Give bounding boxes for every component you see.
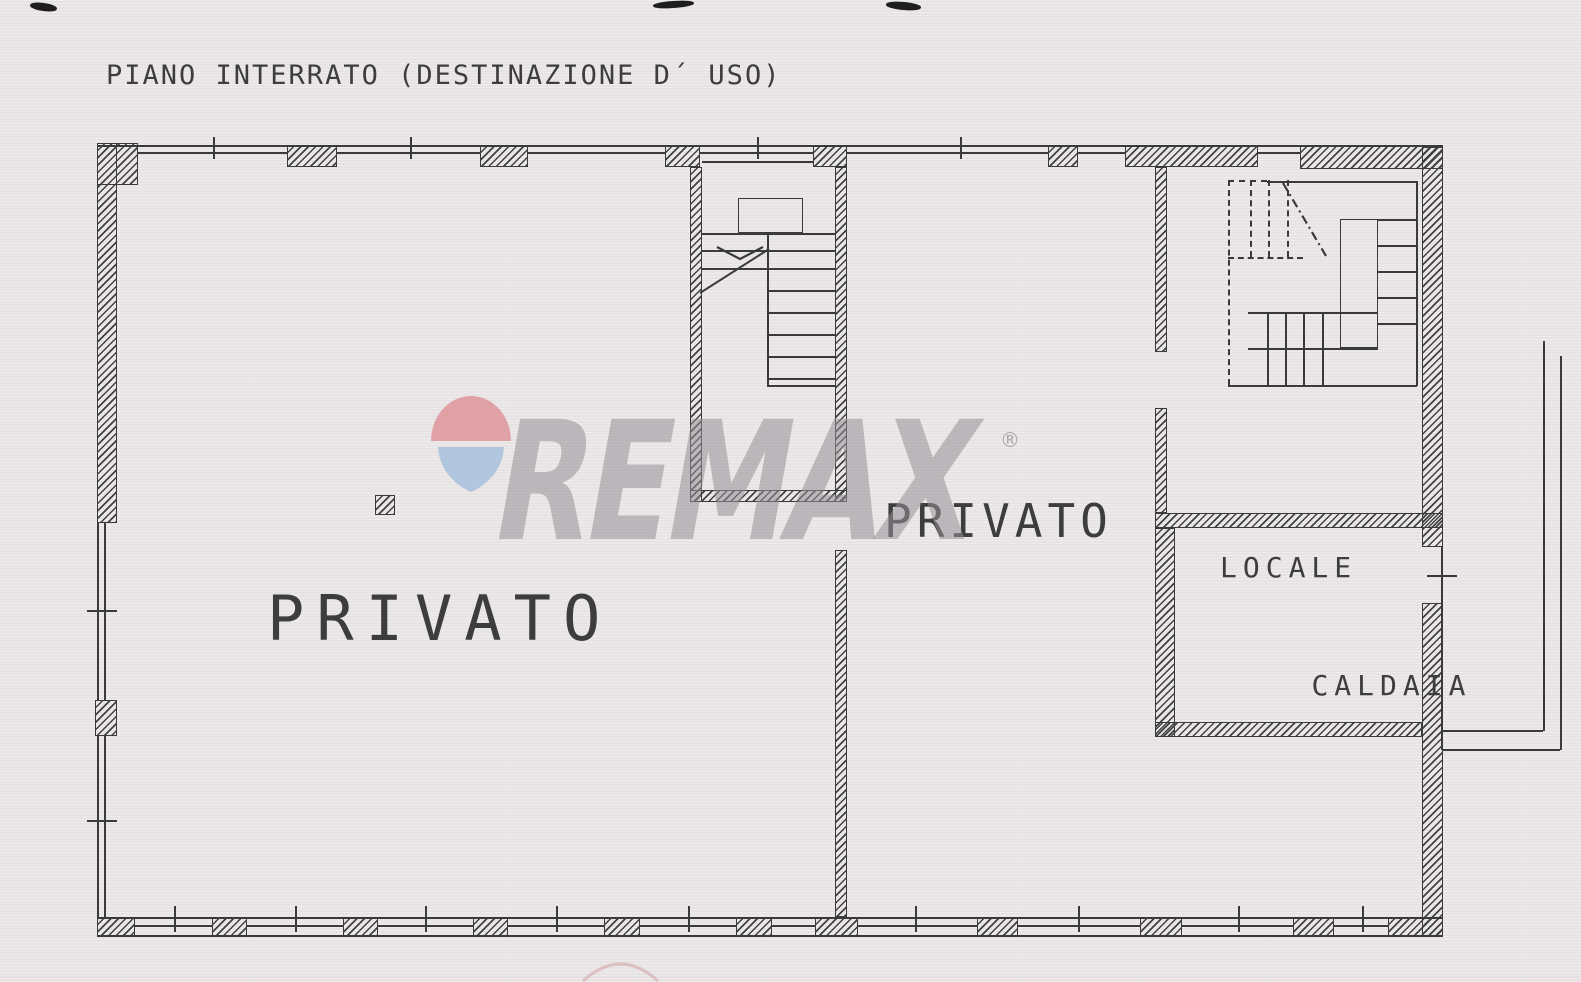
- remax-balloon-icon: [0, 0, 1581, 982]
- floorplan-sheet: PIANO INTERRATO (DESTINAZIONE D´ USO) PR…: [0, 0, 1581, 982]
- remax-registered-mark: ®: [1000, 428, 1020, 452]
- balloon-bottom-blue: [438, 447, 504, 492]
- balloon-top-red: [431, 396, 511, 441]
